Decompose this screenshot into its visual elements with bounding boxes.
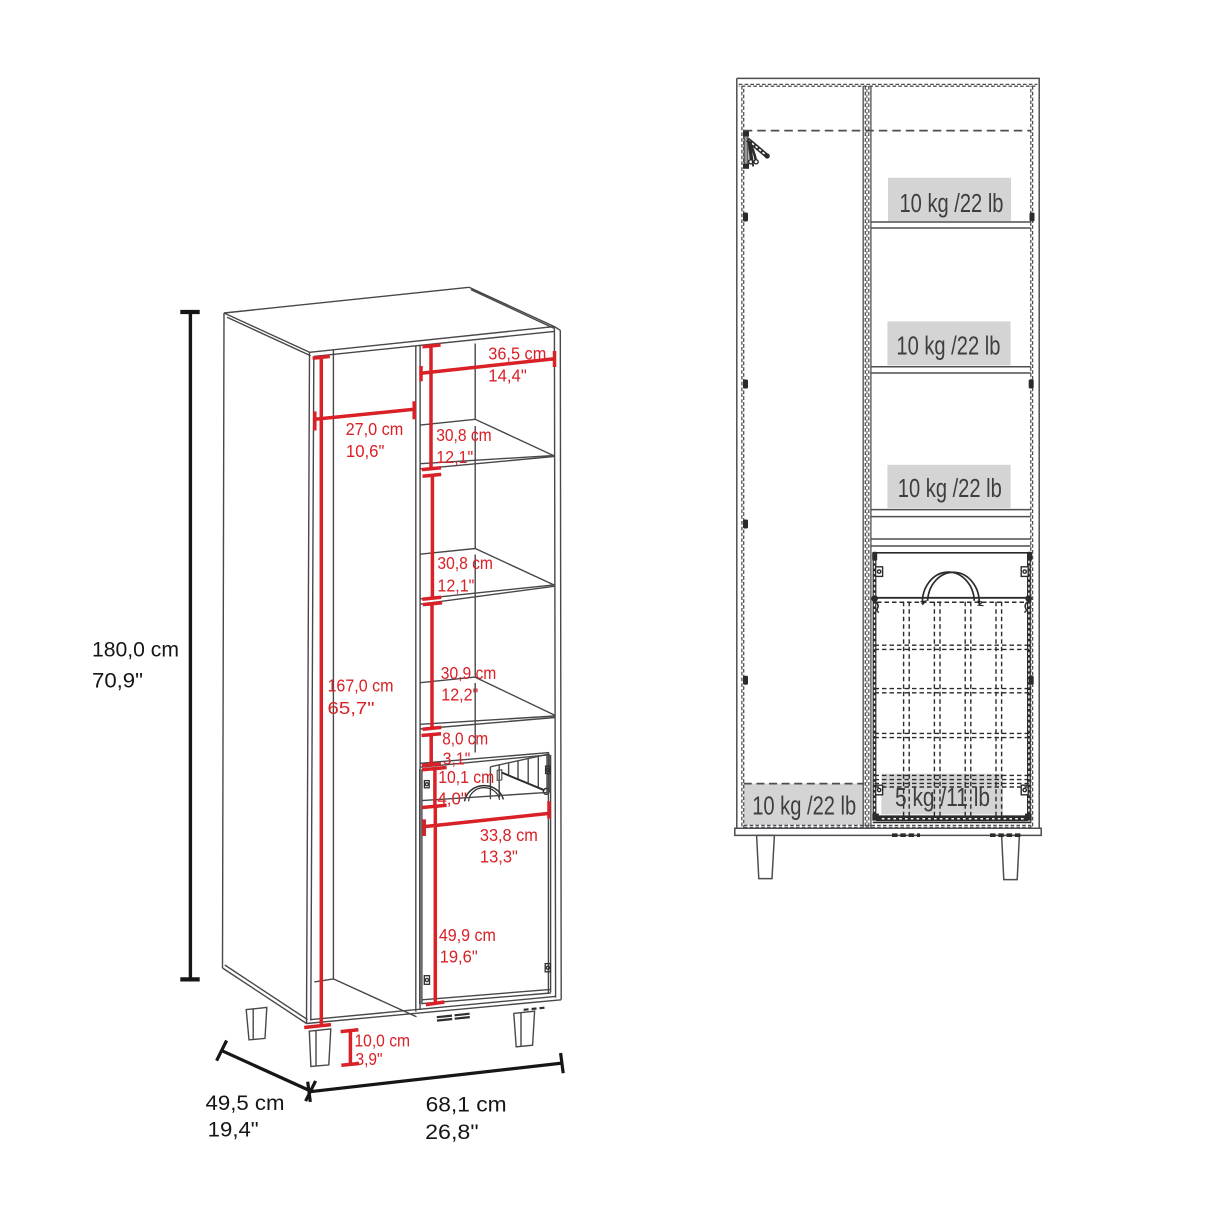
svg-text:3,1": 3,1" (443, 748, 471, 768)
svg-text:10,1 cm: 10,1 cm (438, 767, 494, 787)
svg-text:10 kg /22 lb: 10 kg /22 lb (898, 475, 1002, 503)
svg-text:10,0 cm: 10,0 cm (355, 1030, 411, 1050)
svg-text:10,6": 10,6" (346, 441, 385, 461)
svg-text:167,0 cm: 167,0 cm (328, 676, 394, 696)
svg-text:70,9": 70,9" (92, 669, 143, 693)
svg-text:36,5 cm: 36,5 cm (488, 344, 546, 364)
svg-text:4,0": 4,0" (437, 789, 467, 809)
svg-text:49,9 cm: 49,9 cm (439, 925, 496, 945)
svg-text:27,0 cm: 27,0 cm (346, 419, 404, 439)
svg-text:49,5 cm: 49,5 cm (206, 1091, 285, 1115)
svg-text:3,9": 3,9" (356, 1049, 383, 1069)
svg-text:5 kg /11 lb: 5 kg /11 lb (895, 784, 990, 812)
svg-text:65,7": 65,7" (328, 698, 375, 718)
svg-text:10 kg /22 lb: 10 kg /22 lb (896, 332, 1000, 360)
svg-text:8,0 cm: 8,0 cm (442, 728, 488, 748)
svg-text:180,0 cm: 180,0 cm (92, 638, 179, 662)
svg-text:30,8 cm: 30,8 cm (437, 553, 493, 573)
svg-text:33,8 cm: 33,8 cm (480, 825, 538, 845)
svg-text:26,8": 26,8" (425, 1120, 479, 1144)
svg-text:30,9 cm: 30,9 cm (441, 663, 497, 683)
svg-text:10 kg /22 lb: 10 kg /22 lb (752, 793, 856, 821)
svg-text:13,3": 13,3" (480, 846, 518, 866)
svg-text:19,6": 19,6" (440, 947, 478, 967)
svg-text:12,1": 12,1" (437, 576, 474, 596)
svg-text:19,4": 19,4" (208, 1118, 259, 1142)
svg-text:12,2": 12,2" (441, 685, 478, 705)
svg-text:68,1 cm: 68,1 cm (426, 1093, 507, 1117)
svg-text:12,1": 12,1" (436, 447, 473, 467)
svg-text:30,8 cm: 30,8 cm (436, 425, 492, 445)
svg-text:14,4": 14,4" (488, 366, 527, 386)
svg-text:10 kg /22 lb: 10 kg /22 lb (900, 190, 1004, 218)
